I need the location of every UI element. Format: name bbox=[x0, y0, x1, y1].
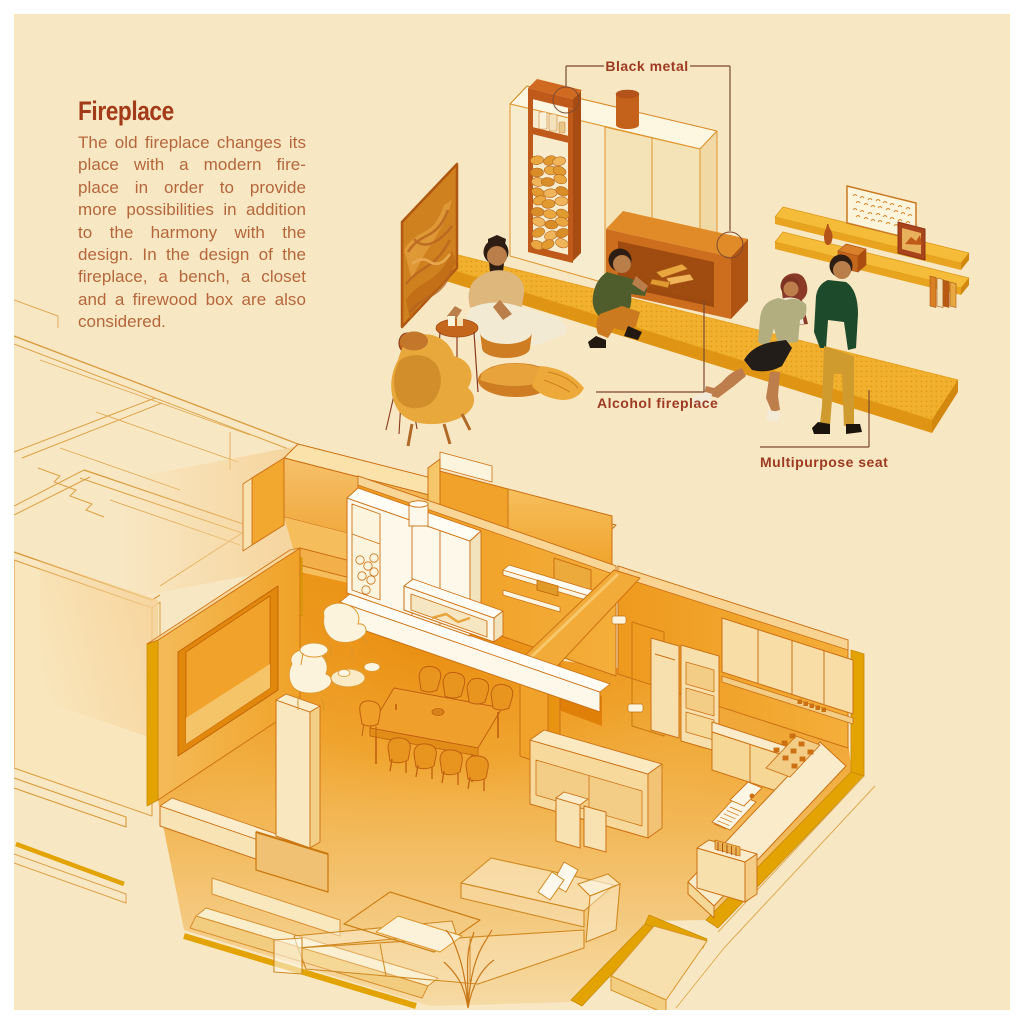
svg-text:Multipurpose seat: Multipurpose seat bbox=[760, 454, 888, 470]
svg-text:Alcohol fireplace: Alcohol fireplace bbox=[597, 395, 718, 411]
svg-text:Black metal: Black metal bbox=[605, 58, 688, 74]
